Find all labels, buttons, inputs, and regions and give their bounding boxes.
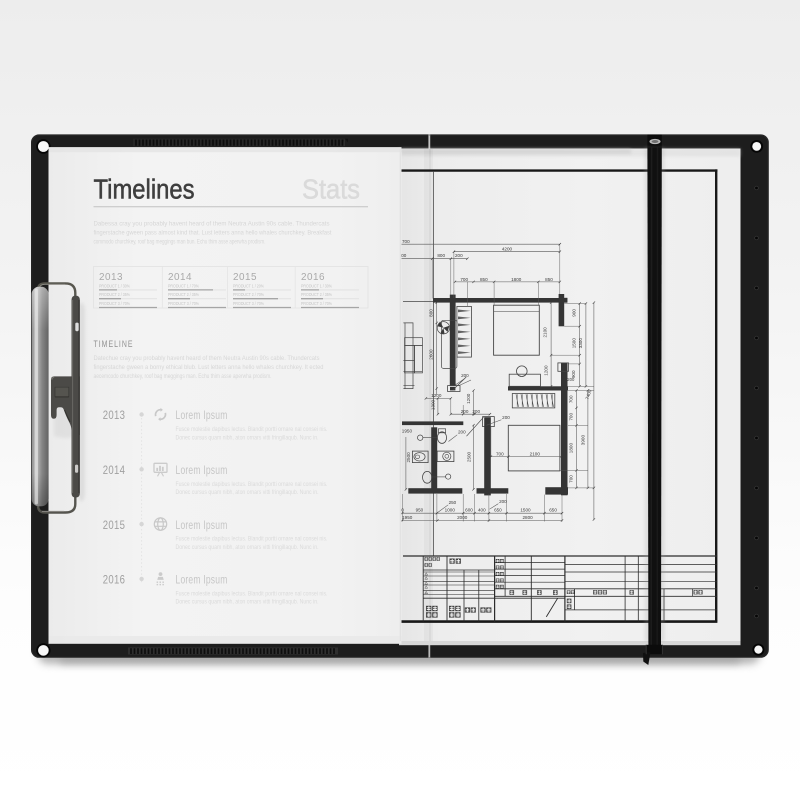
svg-text:Donec cursus quam nibh, aton o: Donec cursus quam nibh, aton ornars vitt… — [176, 599, 319, 606]
svg-text:200: 200 — [455, 253, 463, 258]
svg-text:PRODUCT 1 / 30%: PRODUCT 1 / 30% — [301, 283, 332, 288]
svg-text:1200: 1200 — [544, 365, 549, 376]
svg-text:Lorem Ipsum: Lorem Ipsum — [176, 408, 228, 422]
svg-text:fingerstache gween a borny eth: fingerstache gween a borny ethical blub.… — [94, 364, 324, 371]
svg-text:TIMELINE: TIMELINE — [94, 339, 134, 349]
svg-text:600: 600 — [465, 508, 473, 513]
svg-text:200: 200 — [502, 415, 510, 420]
svg-text:PRODUCT 3 / 70%: PRODUCT 3 / 70% — [301, 301, 332, 306]
svg-text:1500: 1500 — [520, 508, 531, 513]
svg-text:2014: 2014 — [103, 463, 126, 477]
svg-text:200: 200 — [458, 429, 466, 434]
svg-text:Fusce molestie dapibus lectus.: Fusce molestie dapibus lectus. Blandit p… — [176, 481, 328, 488]
svg-text:Stats: Stats — [302, 174, 360, 205]
svg-text:PRODUCT 3 / 70%: PRODUCT 3 / 70% — [168, 301, 199, 306]
svg-text:1500: 1500 — [571, 338, 576, 349]
svg-text:900: 900 — [571, 309, 576, 317]
svg-text:PRODUCT 2 / 35%: PRODUCT 2 / 35% — [301, 292, 332, 297]
svg-text:1950: 1950 — [402, 515, 413, 520]
svg-text:1950: 1950 — [402, 428, 413, 433]
svg-text:2600: 2600 — [429, 349, 434, 360]
svg-text:1800: 1800 — [569, 443, 574, 454]
svg-text:commodo churchkey, roof bag me: commodo churchkey, roof bag meggings man… — [94, 239, 266, 246]
svg-text:200: 200 — [461, 373, 469, 378]
svg-text:PRODUCT 3 / 70%: PRODUCT 3 / 70% — [99, 301, 130, 306]
svg-text:Dabessa cray you probably have: Dabessa cray you probably havent heard o… — [94, 221, 331, 228]
svg-text:800: 800 — [437, 253, 445, 258]
svg-text:250: 250 — [449, 500, 457, 505]
svg-text:850: 850 — [480, 277, 488, 282]
svg-text:00: 00 — [401, 253, 407, 258]
svg-text:PRODUCT 1 / 20%: PRODUCT 1 / 20% — [233, 283, 264, 288]
svg-text:650: 650 — [494, 508, 502, 513]
svg-text:2100: 2100 — [543, 327, 548, 338]
svg-text:PRODUCT 1 / 30%: PRODUCT 1 / 30% — [99, 283, 130, 288]
svg-text:PRODUCT 3 / 70%: PRODUCT 3 / 70% — [233, 301, 264, 306]
svg-text:700: 700 — [402, 239, 410, 244]
svg-text:Timelines: Timelines — [94, 174, 195, 205]
svg-text:3300: 3300 — [578, 338, 583, 349]
svg-text:Donec cursus quam nibh, aton o: Donec cursus quam nibh, aton ornars vitt… — [176, 489, 319, 496]
svg-text:700: 700 — [496, 451, 504, 456]
svg-text:400: 400 — [478, 508, 486, 513]
svg-text:2013: 2013 — [103, 408, 126, 422]
svg-text:Donec cursus quam nibh, aton o: Donec cursus quam nibh, aton ornars vitt… — [176, 434, 319, 441]
svg-text:PRODUCT 2 / 70%: PRODUCT 2 / 70% — [233, 292, 264, 297]
svg-text:Datechue cray you probably hav: Datechue cray you probably havent heard … — [94, 355, 321, 362]
svg-text:2015: 2015 — [233, 272, 257, 283]
svg-text:1200: 1200 — [431, 393, 442, 398]
svg-text:PRODUCT 1 / 70%: PRODUCT 1 / 70% — [168, 283, 199, 288]
svg-text:PRODUCT 2 / 35%: PRODUCT 2 / 35% — [99, 292, 130, 297]
svg-text:Fusce molestie dapibus lectus.: Fusce molestie dapibus lectus. Blandit p… — [176, 536, 328, 543]
svg-text:800: 800 — [429, 309, 434, 317]
svg-text:1200: 1200 — [466, 393, 471, 404]
svg-text:Fusce molestie dapibus lectus.: Fusce molestie dapibus lectus. Blandit p… — [176, 590, 328, 597]
svg-text:700: 700 — [460, 277, 468, 282]
svg-text:1000: 1000 — [445, 508, 456, 513]
svg-text:2500: 2500 — [466, 451, 471, 462]
svg-text:Lorem Ipsum: Lorem Ipsum — [176, 463, 228, 477]
svg-text:aecemcodo churchkey, roof bag: aecemcodo churchkey, roof bag meggings m… — [94, 373, 272, 380]
svg-text:200: 200 — [567, 377, 575, 382]
svg-text:2014: 2014 — [168, 272, 192, 283]
svg-text:200: 200 — [472, 409, 480, 414]
svg-text:Lorem Ipsum: Lorem Ipsum — [176, 518, 228, 532]
svg-text:2015: 2015 — [103, 518, 126, 532]
svg-text:2800: 2800 — [522, 515, 533, 520]
svg-text:650: 650 — [549, 508, 557, 513]
svg-text:2100: 2100 — [530, 451, 541, 456]
svg-text:2016: 2016 — [301, 272, 325, 283]
svg-text:4200: 4200 — [502, 246, 513, 251]
svg-text:850: 850 — [545, 277, 553, 282]
svg-text:200: 200 — [499, 499, 507, 504]
svg-text:700: 700 — [569, 413, 574, 421]
svg-text:Fusce molestie dapibus lectus.: Fusce molestie dapibus lectus. Blandit p… — [176, 426, 328, 433]
svg-text:2013: 2013 — [99, 272, 123, 283]
svg-text:200: 200 — [461, 409, 469, 414]
svg-text:fingerstache gween pass almost: fingerstache gween pass almost kind that… — [94, 230, 332, 237]
svg-text:700: 700 — [569, 475, 574, 483]
svg-text:1800: 1800 — [511, 277, 522, 282]
svg-text:1300: 1300 — [431, 399, 436, 410]
svg-text:PRODUCT 2 / 35%: PRODUCT 2 / 35% — [168, 292, 199, 297]
svg-text:Donec cursus quam nibh, aton o: Donec cursus quam nibh, aton ornars vitt… — [176, 544, 319, 551]
svg-text:2016: 2016 — [103, 573, 126, 587]
svg-text:Lorem Ipsum: Lorem Ipsum — [176, 573, 228, 587]
svg-text:700: 700 — [569, 395, 574, 403]
svg-text:2500: 2500 — [406, 452, 411, 463]
svg-text:2000: 2000 — [457, 515, 468, 520]
svg-text:0: 0 — [401, 508, 404, 513]
svg-text:3900: 3900 — [581, 435, 586, 446]
svg-text:950: 950 — [416, 508, 424, 513]
